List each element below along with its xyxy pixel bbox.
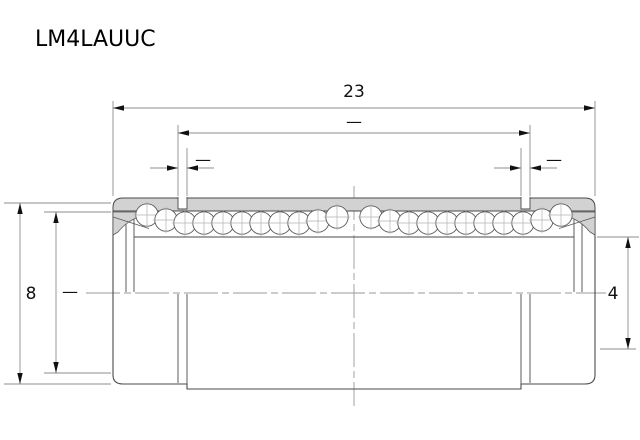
- drawing-page: LM4LAUUC: [0, 0, 640, 440]
- dimension-left-groove-width: —: [150, 148, 214, 196]
- arrowhead-left: [510, 165, 521, 170]
- arrowhead-left: [178, 130, 189, 135]
- dimension-value: 8: [26, 284, 37, 304]
- arrowhead-bottom: [17, 373, 22, 384]
- right-groove-notch: [522, 197, 530, 210]
- dimension-value: —: [346, 112, 362, 131]
- dimension-seal-recess-diameter: —: [44, 212, 111, 373]
- left-groove-notch: [179, 197, 187, 210]
- dimension-outer-diameter: 8: [4, 203, 111, 384]
- arrowhead-top: [625, 237, 630, 248]
- arrowhead-left: [167, 165, 178, 170]
- arrowhead-right: [584, 105, 595, 110]
- dimension-value: —: [546, 150, 562, 169]
- arrowhead-left: [113, 105, 124, 110]
- arrowhead-bottom: [625, 338, 630, 349]
- dimension-overall-length: 23: [113, 82, 595, 196]
- dimension-value: —: [62, 282, 78, 301]
- dimension-value: 4: [608, 284, 619, 304]
- arrowhead-right: [519, 130, 530, 135]
- technical-drawing: LM4LAUUC: [0, 0, 640, 440]
- dimension-right-groove-width: —: [494, 148, 562, 196]
- arrowhead-top: [53, 212, 58, 223]
- part-number: LM4LAUUC: [35, 27, 156, 52]
- arrowhead-top: [17, 203, 22, 214]
- dimension-value: 23: [343, 82, 365, 102]
- arrowhead-right: [530, 165, 541, 170]
- dimension-groove-span: —: [178, 112, 530, 196]
- arrowhead-bottom: [53, 362, 58, 373]
- dimension-value: —: [195, 150, 211, 169]
